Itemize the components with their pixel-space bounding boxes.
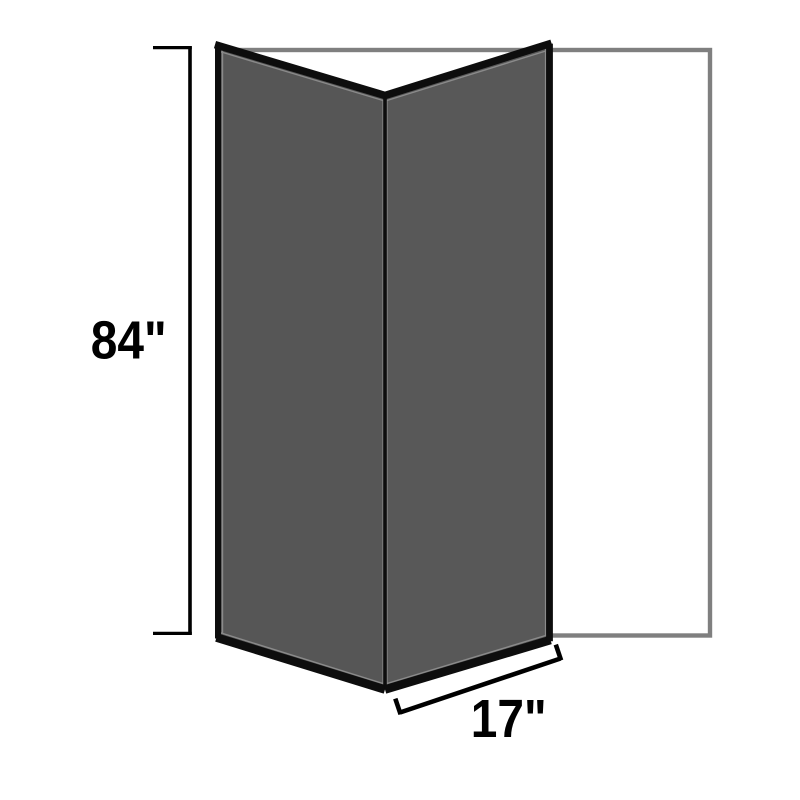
svg-text:17": 17" bbox=[471, 688, 547, 748]
svg-text:84": 84" bbox=[91, 310, 167, 370]
